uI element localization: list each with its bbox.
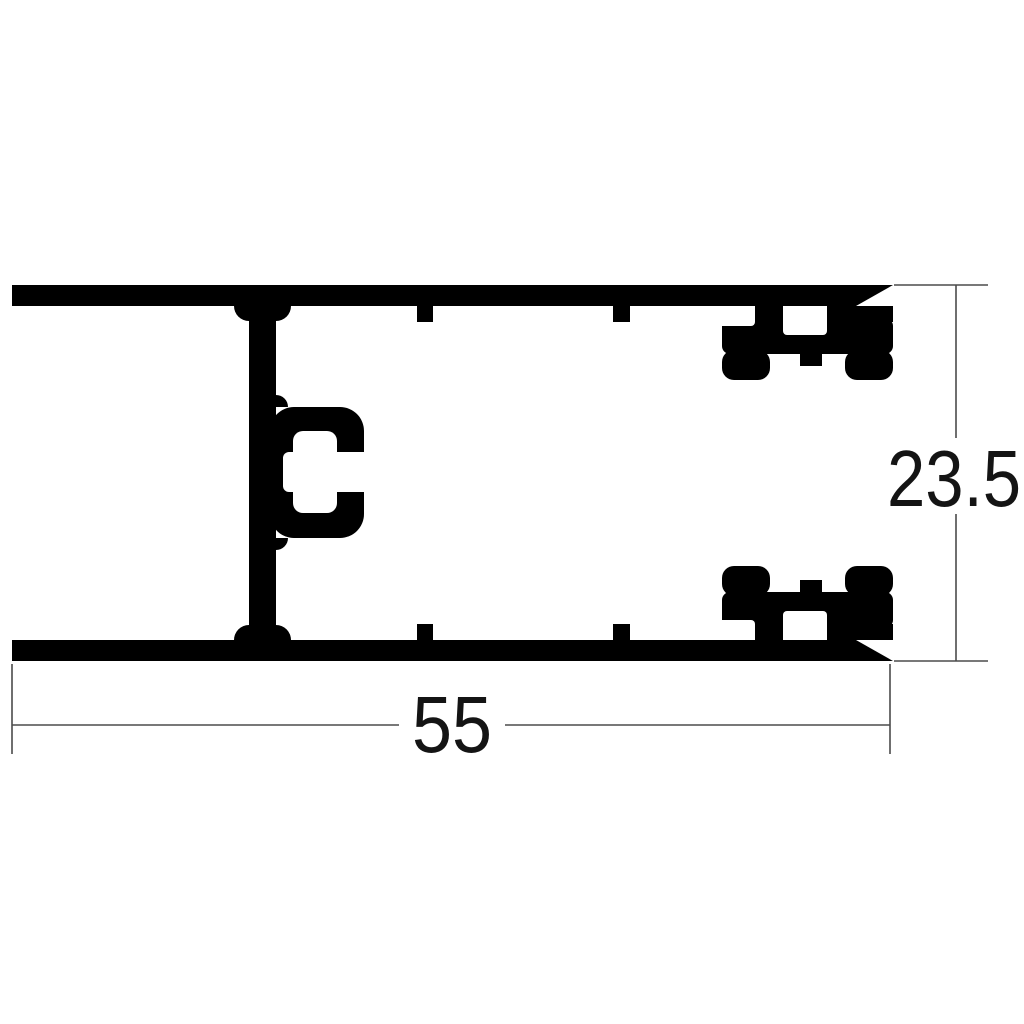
bottom-flange-tick-right bbox=[613, 624, 630, 640]
drawing-canvas: 55 23.5 bbox=[0, 0, 1024, 1024]
profile-section bbox=[12, 285, 893, 661]
profile-cross-section-drawing: 55 23.5 bbox=[0, 0, 1024, 1024]
bottom-flange bbox=[12, 640, 893, 661]
dimension-width: 55 bbox=[12, 664, 890, 769]
dimension-width-label: 55 bbox=[412, 680, 492, 769]
screw-channel-fillet bbox=[276, 395, 288, 407]
screw-channel-cavity bbox=[293, 431, 337, 513]
web-fillet bbox=[276, 625, 291, 640]
glazing-clip-top bbox=[716, 306, 893, 380]
bottom-flange-tick-left bbox=[417, 624, 433, 640]
web-fillet bbox=[234, 306, 249, 321]
dimension-height-label: 23.5 bbox=[887, 434, 1021, 523]
top-flange bbox=[12, 285, 893, 306]
web-fillet bbox=[234, 625, 249, 640]
top-flange-tick-right bbox=[613, 306, 630, 322]
glazing-clip-bottom bbox=[716, 566, 893, 640]
dimension-height: 23.5 bbox=[887, 285, 1021, 661]
web-fillet bbox=[276, 306, 291, 321]
screw-channel-fillet bbox=[276, 538, 288, 550]
top-flange-tick-left bbox=[417, 306, 433, 322]
